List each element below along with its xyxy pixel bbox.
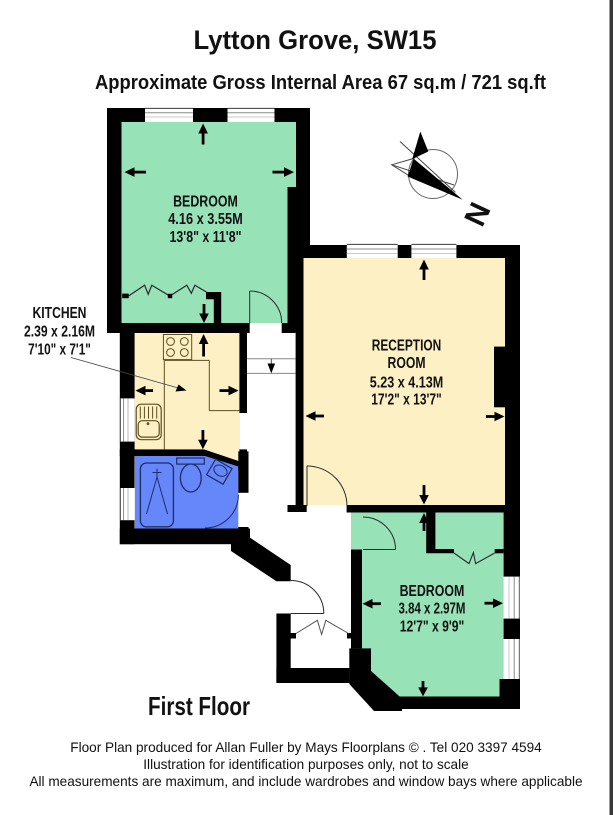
svg-text:ROOM: ROOM	[388, 355, 426, 372]
svg-text:3.84 x 2.97M: 3.84 x 2.97M	[399, 601, 466, 618]
svg-text:7'10" x 7'1": 7'10" x 7'1"	[28, 342, 91, 359]
svg-text:13'8" x 11'8": 13'8" x 11'8"	[170, 229, 242, 246]
svg-text:4.16 x 3.55M: 4.16 x 3.55M	[168, 211, 243, 228]
svg-text:KITCHEN: KITCHEN	[33, 305, 87, 322]
svg-text:BEDROOM: BEDROOM	[173, 194, 238, 211]
svg-text:12'7" x 9'9": 12'7" x 9'9"	[400, 619, 465, 636]
svg-text:N: N	[457, 197, 496, 231]
svg-text:Approximate Gross Internal Are: Approximate Gross Internal Area 67 sq.m …	[95, 72, 546, 94]
svg-text:2.39 x 2.16M: 2.39 x 2.16M	[24, 324, 95, 341]
svg-text:BEDROOM: BEDROOM	[400, 583, 465, 600]
svg-text:All measurements are maximum,: All measurements are maximum, and includ…	[29, 774, 582, 789]
svg-text:Illustration for identificatio: Illustration for identification purposes…	[143, 757, 468, 772]
svg-text:First Floor: First Floor	[148, 691, 250, 721]
svg-text:17'2" x 13'7": 17'2" x 13'7"	[371, 392, 442, 409]
svg-text:Floor Plan produced for Allan: Floor Plan produced for Allan Fuller by …	[70, 740, 542, 755]
svg-text:5.23 x 4.13M: 5.23 x 4.13M	[370, 375, 443, 392]
svg-text:RECEPTION: RECEPTION	[372, 338, 442, 355]
svg-text:Lytton Grove, SW15: Lytton Grove, SW15	[194, 25, 437, 55]
